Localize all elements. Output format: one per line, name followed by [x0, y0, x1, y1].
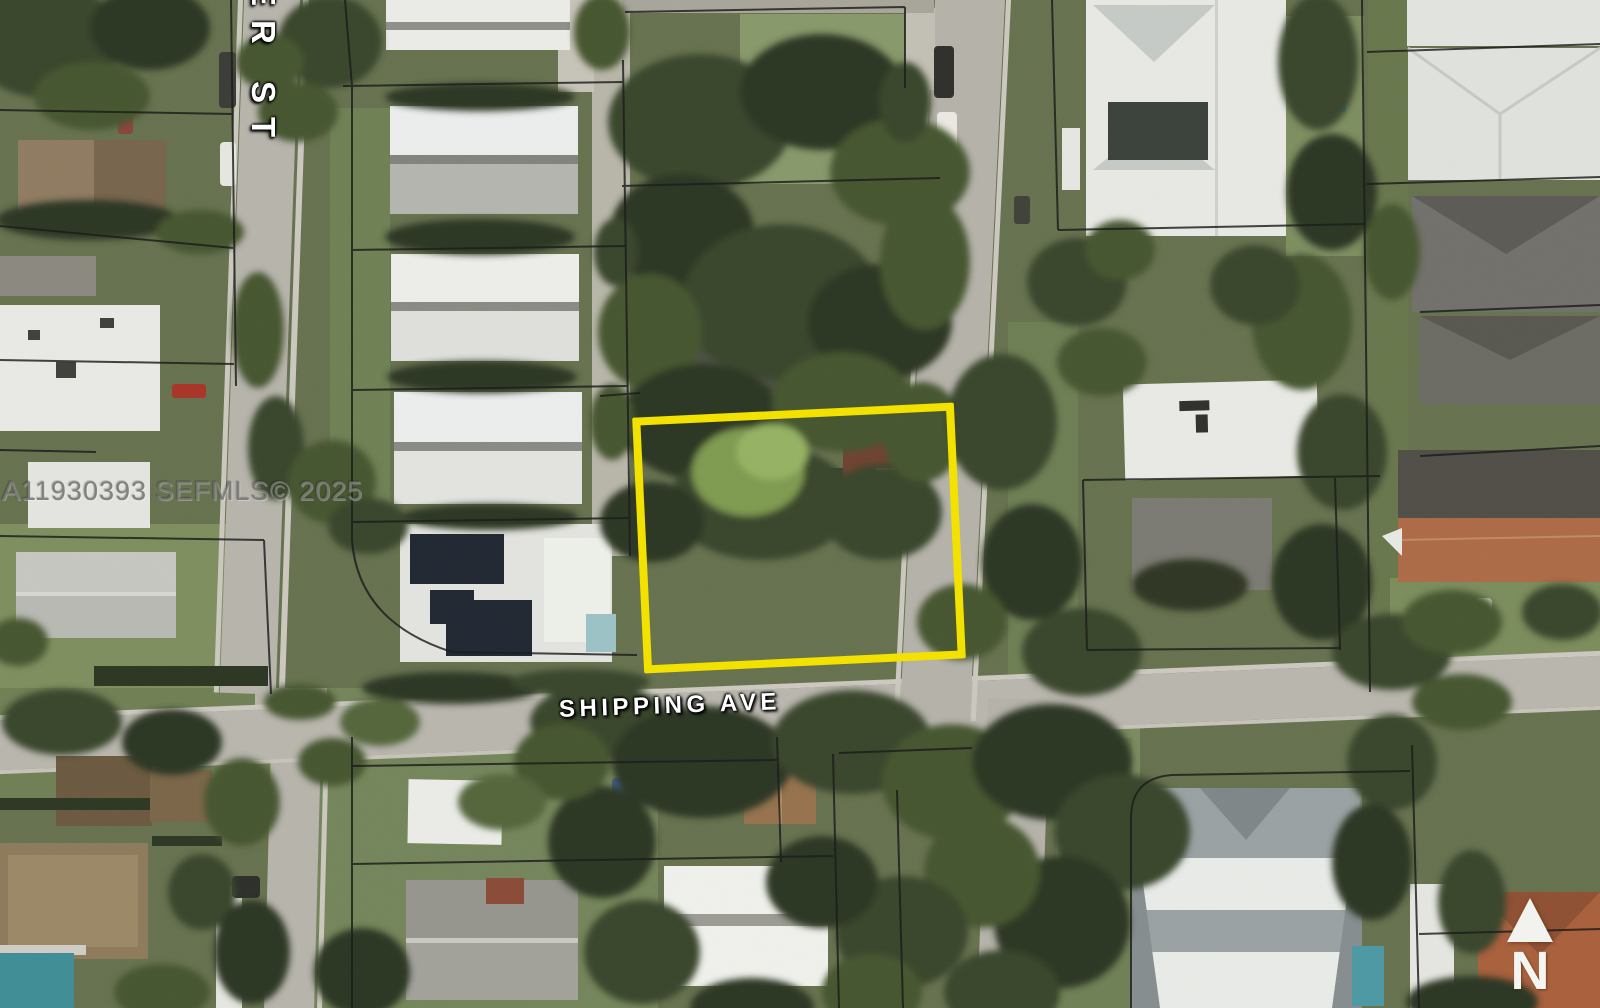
photo-grain: [0, 0, 1600, 1008]
aerial-parcel-map: ER ST SHIPPING AVE A11930393 SEFMLS© 202…: [0, 0, 1600, 1008]
aerial-photo-canvas: [0, 0, 1600, 1008]
